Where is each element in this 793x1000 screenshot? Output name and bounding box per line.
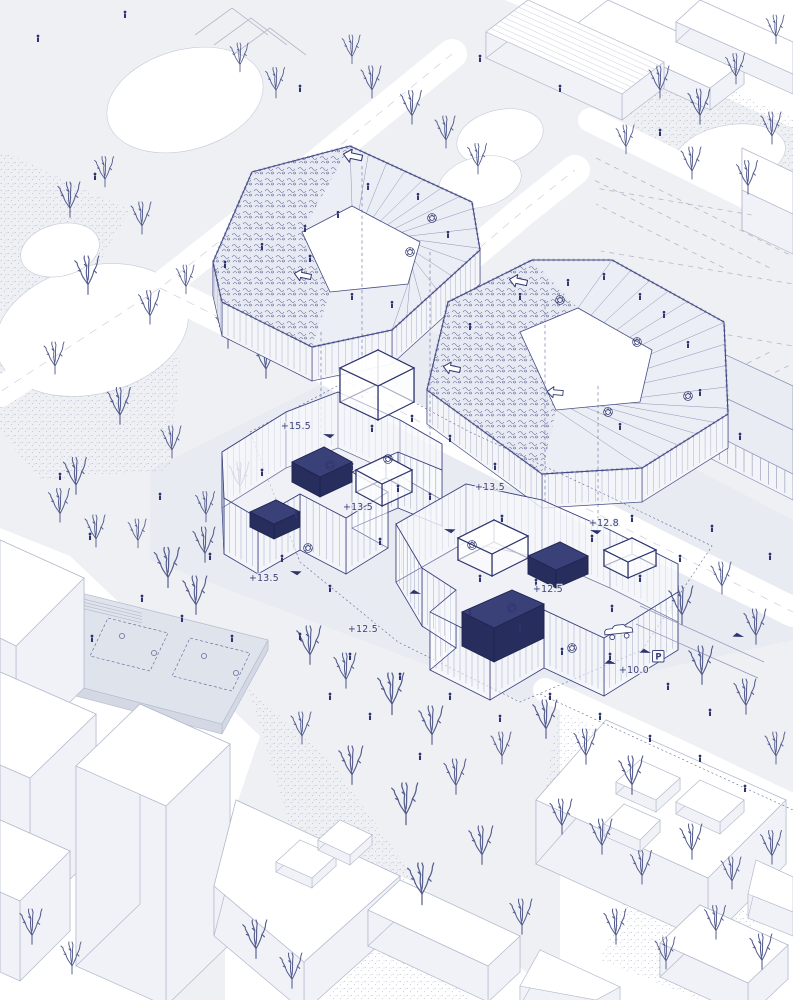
site-drawing: P +15.5 +13.5 +13.5 +12.8 +13.5 +12.5 +1… <box>0 0 793 1000</box>
elevation-label: +12.5 <box>348 624 378 635</box>
elevation-label: +13.5 <box>249 573 279 584</box>
elevation-label: +12.5 <box>533 584 563 595</box>
parking-sign-letter: P <box>655 652 661 662</box>
elevation-label: +10.0 <box>619 665 649 676</box>
elevation-label: +15.5 <box>281 421 311 432</box>
axonometric-scene: P +15.5 +13.5 +13.5 +12.8 +13.5 +12.5 +1… <box>0 0 793 1000</box>
elevation-label: +12.8 <box>589 518 619 529</box>
elevation-label: +13.5 <box>343 502 373 513</box>
elevation-label: +13.5 <box>475 482 505 493</box>
